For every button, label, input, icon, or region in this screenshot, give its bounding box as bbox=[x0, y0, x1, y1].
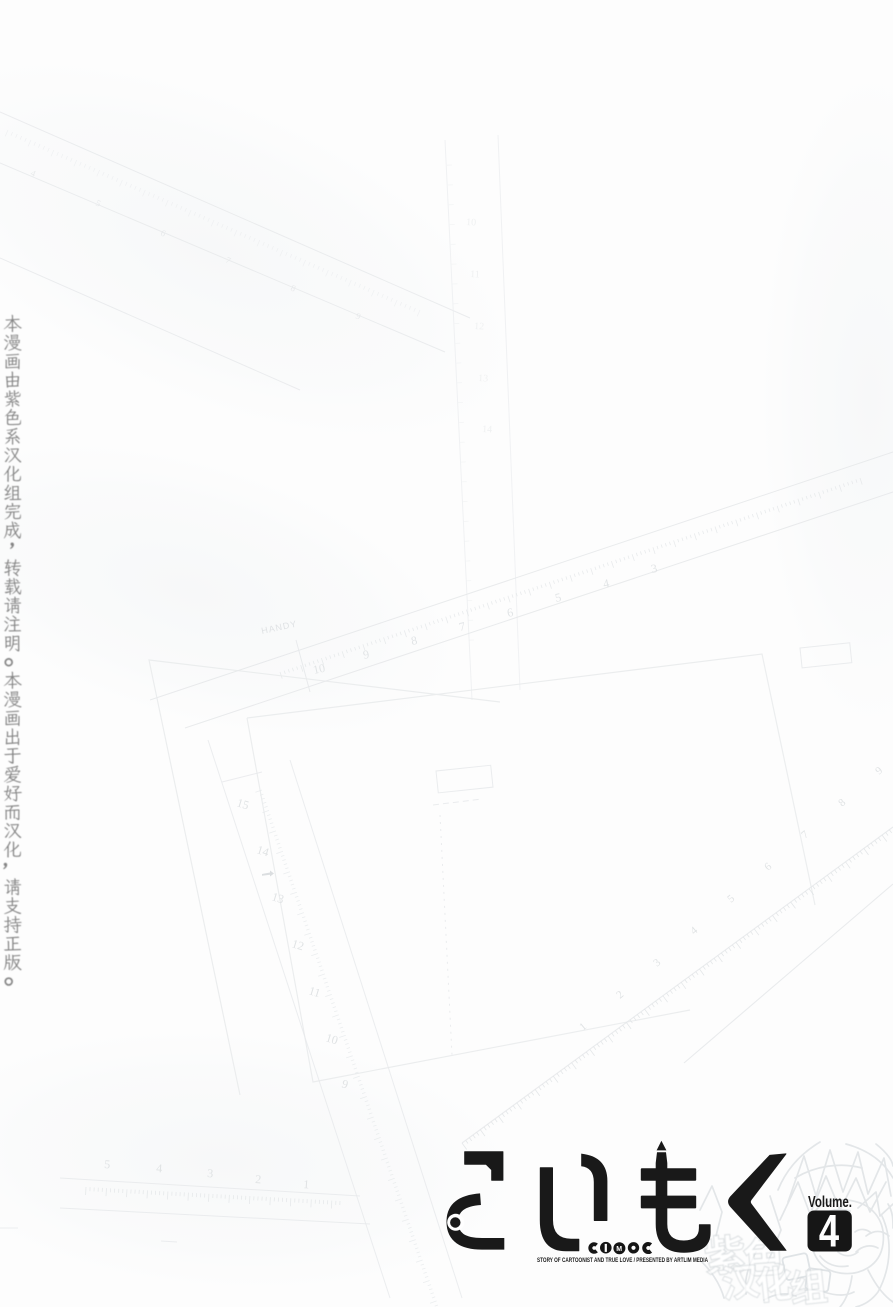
svg-text:3: 3 bbox=[207, 1166, 214, 1180]
svg-text:STORY OF CARTOONIST AND TRUE L: STORY OF CARTOONIST AND TRUE LOVE / PRES… bbox=[537, 1257, 708, 1264]
svg-text:M: M bbox=[616, 1246, 622, 1253]
svg-text:11: 11 bbox=[470, 269, 480, 280]
svg-text:14: 14 bbox=[482, 424, 493, 436]
svg-text:1: 1 bbox=[303, 1177, 310, 1191]
svg-text:10: 10 bbox=[466, 217, 477, 229]
svg-text:2: 2 bbox=[255, 1172, 262, 1186]
svg-text:12: 12 bbox=[474, 321, 485, 333]
svg-text:5: 5 bbox=[104, 1157, 111, 1171]
svg-text:4: 4 bbox=[156, 1161, 163, 1175]
svg-text:13: 13 bbox=[478, 373, 489, 385]
svg-text:4: 4 bbox=[819, 1206, 839, 1257]
